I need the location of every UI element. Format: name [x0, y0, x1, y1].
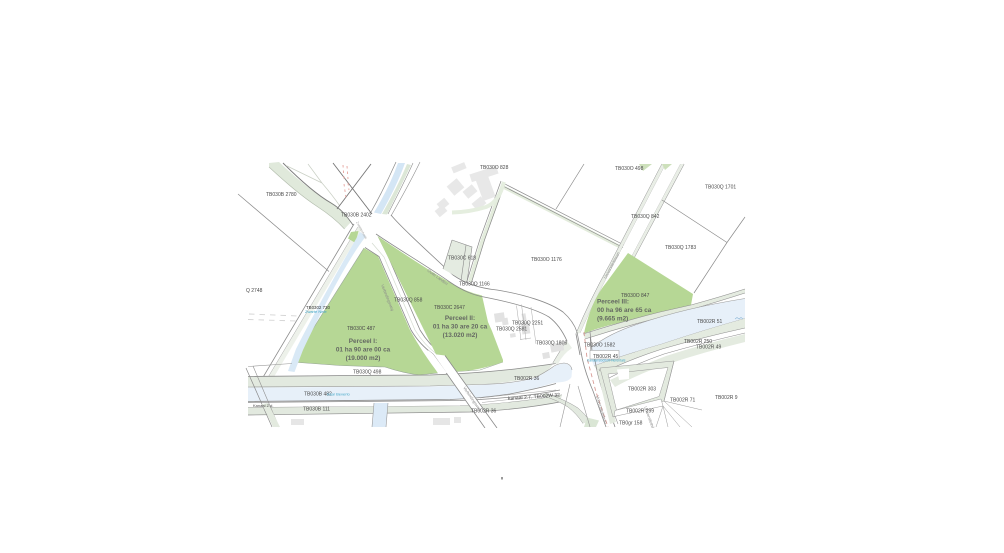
svg-text:Perceel II:: Perceel II: [445, 315, 475, 322]
svg-text:TB030B 2780: TB030B 2780 [266, 192, 297, 198]
svg-text:TB030Q 858: TB030Q 858 [394, 298, 423, 304]
svg-text:TB030Q 498: TB030Q 498 [353, 370, 382, 376]
svg-text:TB002R 51: TB002R 51 [697, 319, 723, 325]
svg-text:TB030O 498: TB030O 498 [615, 166, 644, 172]
svg-text:TB002R 36: TB002R 36 [471, 409, 497, 415]
svg-text:Kanaal Bocholt-Herentals: Kanaal Bocholt-Herentals [587, 359, 626, 363]
svg-text:naar Beverlo: naar Beverlo [327, 392, 350, 397]
svg-text:TB030B 2402: TB030B 2402 [341, 213, 372, 219]
svg-text:TB002R 49: TB002R 49 [696, 345, 722, 351]
svg-text:(13.020 m2): (13.020 m2) [443, 332, 478, 339]
svg-text:TB030Q 1806: TB030Q 1806 [536, 341, 567, 347]
svg-text:TB030Q 1783: TB030Q 1783 [665, 245, 696, 251]
svg-text:TB030O 1166: TB030O 1166 [459, 282, 490, 288]
svg-text:TB030O 1176: TB030O 1176 [531, 257, 562, 263]
svg-text:TB030O 1582: TB030O 1582 [584, 343, 615, 349]
svg-text:01 ha 30 are 20 ca: 01 ha 30 are 20 ca [433, 324, 488, 331]
svg-text:TB030Q 1701: TB030Q 1701 [705, 185, 736, 191]
svg-text:TB030C 2647: TB030C 2647 [434, 305, 465, 311]
svg-text:TB0gr 158: TB0gr 158 [619, 421, 643, 427]
svg-text:Kanaal Z.d.: Kanaal Z.d. [253, 403, 273, 408]
svg-text:TB030C 487: TB030C 487 [347, 326, 375, 332]
svg-text:TB002R 9: TB002R 9 [715, 395, 738, 401]
svg-text:Zwarte Nete: Zwarte Nete [305, 309, 328, 314]
svg-text:TB030B 111: TB030B 111 [303, 407, 330, 413]
svg-text:Q 2748: Q 2748 [246, 288, 263, 294]
svg-text:TB030Q 842: TB030Q 842 [631, 214, 660, 220]
svg-text:TB030Q 2581: TB030Q 2581 [496, 327, 527, 333]
svg-text:(9.665 m2): (9.665 m2) [597, 316, 628, 323]
svg-text:TB030O 828: TB030O 828 [480, 165, 509, 171]
svg-text:00 ha 96 are 65 ca: 00 ha 96 are 65 ca [597, 307, 652, 314]
svg-text:(19.000 m2): (19.000 m2) [346, 355, 381, 362]
svg-text:Perceel I:: Perceel I: [349, 338, 377, 345]
svg-text:01 ha 90 are 00 ca: 01 ha 90 are 00 ca [336, 347, 391, 354]
svg-text:Perceel III:: Perceel III: [597, 299, 629, 306]
svg-text:TB002R 303: TB002R 303 [628, 387, 656, 393]
svg-text:TB002R 36: TB002R 36 [514, 376, 540, 382]
svg-text:TB030C 618: TB030C 618 [448, 256, 476, 262]
svg-text:TB002R 71: TB002R 71 [670, 398, 696, 404]
